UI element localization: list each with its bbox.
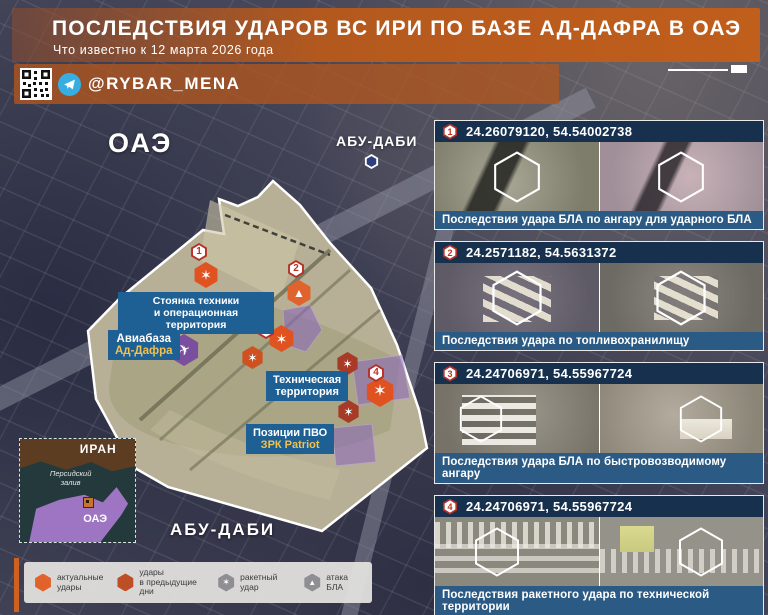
city-label-abu-dhabi-top: АБУ-ДАБИ	[336, 133, 417, 149]
legend-item-current-strikes: актуальные удары	[34, 573, 109, 593]
label-vehicle-parking: Стоянка техники и операционная территори…	[118, 292, 274, 334]
card-3-images	[435, 384, 763, 453]
target-hexagon-icon	[491, 151, 543, 203]
infographic-root: ОАЭ АБУ-ДАБИ АБУ-ДАБИ Стоянка техники и …	[0, 0, 768, 615]
card-1-caption: Последствия удара БЛА по ангару для удар…	[435, 211, 763, 229]
card-4-caption: Последствия ракетного удара по техническ…	[435, 586, 763, 615]
inset-label-iran: ИРАН	[80, 442, 117, 456]
card-2-coordinates: 24.2571182, 54.5631372	[466, 245, 616, 260]
satellite-image-before	[435, 263, 599, 332]
inset-label-gulf: Персидский залив	[50, 470, 91, 487]
card-1-images	[435, 142, 763, 211]
label-airbase-line1: Авиабаза	[115, 333, 173, 345]
city-label-abu-dhabi-bottom: АБУ-ДАБИ	[170, 520, 275, 540]
label-airbase-line2: Ад-Дафра	[115, 345, 173, 357]
legend-item-previous-strikes: удары в предыдущие дни	[116, 568, 210, 597]
card-2-caption: Последствия удара по топливохранилищу	[435, 332, 763, 350]
satellite-image-before	[435, 384, 599, 453]
country-label-uae: ОАЭ	[108, 128, 172, 159]
target-hexagon-icon	[472, 527, 522, 577]
target-hexagon-icon	[676, 527, 726, 577]
label-pvo-line2: ЗРК Patriot	[253, 439, 327, 451]
card-4-number-badge: 4	[442, 499, 458, 515]
card-3-number-badge: 3	[442, 366, 458, 382]
strike-card-1: 1 24.26079120, 54.54002738 Последствия у…	[434, 120, 764, 230]
satellite-image-after	[599, 517, 764, 586]
current-strike-icon	[34, 574, 52, 592]
satellite-image-before	[435, 517, 599, 586]
page-title: ПОСЛЕДСТВИЯ УДАРОВ ВС ИРИ ПО БАЗЕ АД-ДАФ…	[52, 17, 760, 41]
card-4-header: 4 24.24706971, 54.55967724	[435, 496, 763, 517]
missile-strike-icon: ✶	[217, 574, 235, 592]
card-2-images	[435, 263, 763, 332]
card-2-number-badge: 2	[442, 245, 458, 261]
satellite-image-after	[599, 384, 764, 453]
satellite-image-after	[599, 263, 764, 332]
decorative-line	[668, 69, 728, 71]
inset-base-marker	[83, 497, 94, 508]
card-1-coordinates: 24.26079120, 54.54002738	[466, 124, 632, 139]
legend-item-missile-strike: ✶ ракетный удар	[217, 573, 296, 593]
decorative-box	[731, 65, 747, 73]
previous-strike-icon	[116, 573, 134, 591]
card-3-coordinates: 24.24706971, 54.55967724	[466, 366, 632, 381]
legend-bar: актуальные удары удары в предыдущие дни …	[24, 562, 372, 603]
strike-card-4: 4 24.24706971, 54.55967724 Последствия р…	[434, 495, 764, 615]
card-4-coordinates: 24.24706971, 54.55967724	[466, 499, 632, 514]
target-hexagon-icon	[489, 270, 545, 326]
card-2-header: 2 24.2571182, 54.5631372	[435, 242, 763, 263]
target-hexagon-icon	[677, 395, 725, 443]
label-pvo-positions: Позиции ПВО ЗРК Patriot	[246, 424, 334, 454]
target-hexagon-icon	[653, 270, 709, 326]
strike-evidence-panel: 1 24.26079120, 54.54002738 Последствия у…	[434, 120, 764, 615]
card-4-images	[435, 517, 763, 586]
drone-attack-icon: ▲	[303, 574, 321, 592]
strike-card-3: 3 24.24706971, 54.55967724 Последствия у…	[434, 362, 764, 484]
locator-inset-map: ИРАН Персидский залив ОАЭ	[19, 438, 136, 543]
target-hexagon-icon	[655, 151, 707, 203]
telegram-handle-link[interactable]: @RYBAR_MENA	[88, 64, 240, 104]
card-1-header: 1 24.26079120, 54.54002738	[435, 121, 763, 142]
label-airbase: Авиабаза Ад-Дафра	[108, 330, 180, 360]
label-pvo-line1: Позиции ПВО	[253, 427, 327, 439]
telegram-icon	[58, 73, 81, 96]
page-subtitle: Что известно к 12 марта 2026 года	[53, 43, 760, 57]
title-banner: ПОСЛЕДСТВИЯ УДАРОВ ВС ИРИ ПО БАЗЕ АД-ДАФ…	[12, 8, 760, 62]
card-1-number-badge: 1	[442, 124, 458, 140]
strike-card-2: 2 24.2571182, 54.5631372 Последствия уда…	[434, 241, 764, 351]
inset-label-uae: ОАЭ	[83, 513, 107, 525]
card-3-header: 3 24.24706971, 54.55967724	[435, 363, 763, 384]
satellite-image-before	[435, 142, 599, 211]
uae-landmass	[20, 478, 135, 542]
satellite-image-after	[599, 142, 764, 211]
qr-code	[20, 68, 52, 100]
legend-item-drone-attack: ▲ атака БЛА	[303, 573, 362, 593]
orange-accent-bar	[14, 558, 19, 612]
target-hexagon-icon	[457, 395, 505, 443]
card-3-caption: Последствия удара БЛА по быстровозводимо…	[435, 453, 763, 483]
label-technical-territory: Техническая территория	[266, 371, 348, 401]
